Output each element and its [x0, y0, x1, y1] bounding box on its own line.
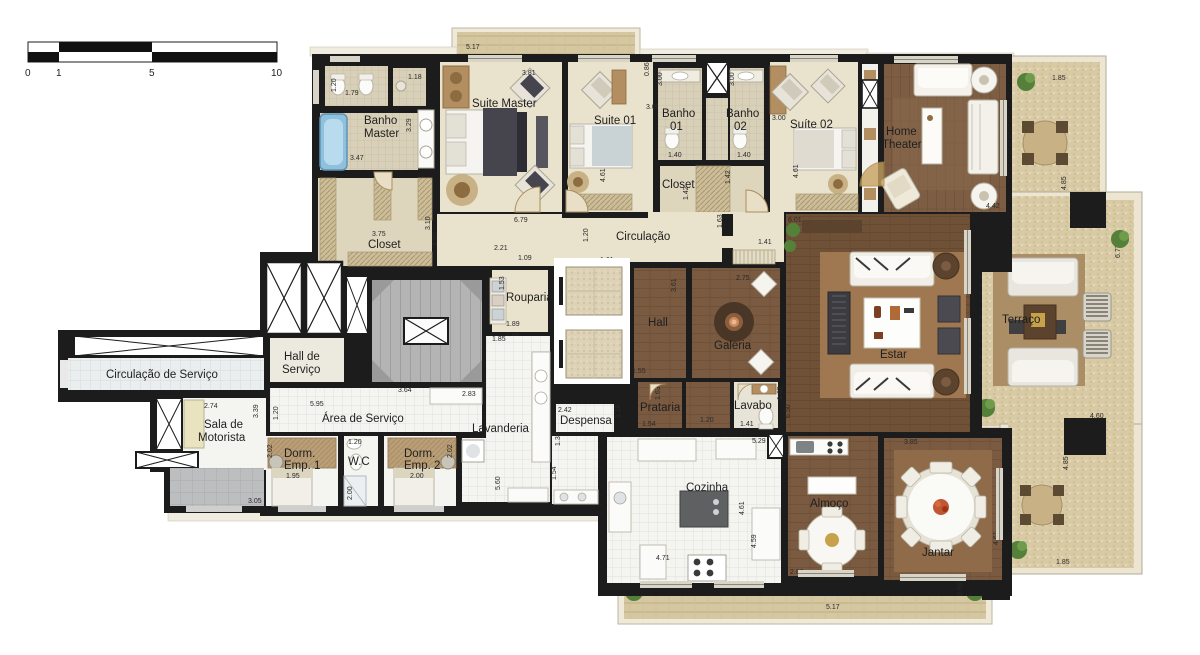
svg-text:5.29: 5.29 [752, 438, 766, 445]
svg-text:1.53: 1.53 [499, 276, 506, 290]
svg-text:Galeria: Galeria [714, 340, 752, 352]
svg-text:Circulação: Circulação [616, 231, 670, 243]
svg-text:2.74: 2.74 [204, 403, 218, 410]
svg-text:Rouparia: Rouparia [506, 292, 553, 304]
svg-text:Banho: Banho [364, 115, 397, 127]
svg-text:5.17: 5.17 [466, 44, 480, 51]
svg-text:4.59: 4.59 [751, 534, 758, 548]
svg-text:1.41: 1.41 [758, 239, 772, 246]
svg-text:5.60: 5.60 [495, 476, 502, 490]
svg-text:0.96: 0.96 [957, 582, 964, 596]
svg-text:3.29: 3.29 [406, 118, 413, 132]
svg-text:Terraço: Terraço [1002, 314, 1040, 326]
svg-text:1.42: 1.42 [683, 186, 690, 200]
svg-text:Emp. 1: Emp. 1 [284, 460, 320, 472]
svg-text:0: 0 [25, 68, 31, 79]
svg-text:Prataria: Prataria [640, 402, 681, 414]
svg-text:6.50: 6.50 [785, 404, 792, 418]
svg-text:1.18: 1.18 [408, 74, 422, 81]
svg-text:4.42: 4.42 [986, 203, 1000, 210]
svg-text:1.20: 1.20 [273, 406, 280, 420]
svg-text:Estar: Estar [880, 349, 907, 361]
svg-text:2.42: 2.42 [558, 407, 572, 414]
svg-text:1.20: 1.20 [348, 439, 362, 446]
svg-text:4.85: 4.85 [1061, 176, 1068, 190]
svg-text:10: 10 [271, 68, 283, 79]
svg-text:1.63: 1.63 [655, 386, 662, 400]
svg-text:Lavanderia: Lavanderia [472, 423, 530, 435]
svg-text:2.00: 2.00 [410, 473, 424, 480]
svg-text:4.61: 4.61 [739, 501, 746, 515]
svg-text:Closet: Closet [368, 239, 401, 251]
svg-text:Almoço: Almoço [810, 498, 848, 510]
svg-text:Hall de: Hall de [284, 351, 320, 363]
svg-text:2.00: 2.00 [347, 486, 354, 500]
svg-text:1.55: 1.55 [632, 368, 646, 375]
svg-text:Dorm.: Dorm. [404, 448, 435, 460]
svg-text:5.17: 5.17 [826, 604, 840, 611]
svg-text:1.40: 1.40 [668, 152, 682, 159]
svg-text:Suite 01: Suite 01 [594, 115, 636, 127]
svg-text:3.75: 3.75 [372, 231, 386, 238]
svg-text:1.18: 1.18 [615, 404, 622, 418]
svg-text:3.64: 3.64 [398, 387, 412, 394]
svg-text:1.89: 1.89 [506, 321, 520, 328]
svg-text:1.40: 1.40 [737, 152, 751, 159]
svg-text:Serviço: Serviço [282, 364, 320, 376]
svg-text:1.95: 1.95 [286, 473, 300, 480]
svg-text:1.85: 1.85 [492, 336, 506, 343]
svg-text:3.00: 3.00 [772, 115, 786, 122]
svg-text:02: 02 [734, 121, 747, 133]
svg-text:Hall: Hall [648, 317, 668, 329]
svg-text:1.09: 1.09 [518, 255, 532, 262]
svg-text:1.20: 1.20 [331, 78, 338, 92]
svg-text:Dorm.: Dorm. [284, 448, 315, 460]
svg-text:4.61: 4.61 [793, 164, 800, 178]
svg-text:Área de Serviço: Área de Serviço [322, 412, 404, 425]
svg-text:6.01: 6.01 [788, 217, 802, 224]
svg-text:1.42: 1.42 [725, 170, 732, 184]
svg-text:2.02: 2.02 [447, 444, 454, 458]
svg-text:Jantar: Jantar [922, 547, 954, 559]
svg-text:1.54: 1.54 [551, 466, 558, 480]
svg-text:1.85: 1.85 [1056, 559, 1070, 566]
svg-text:4.61: 4.61 [600, 168, 607, 182]
svg-text:Circulação de Serviço: Circulação de Serviço [106, 369, 218, 381]
svg-text:3.39: 3.39 [253, 404, 260, 418]
svg-text:2.21: 2.21 [494, 245, 508, 252]
svg-text:1.65: 1.65 [777, 386, 784, 400]
svg-text:Despensa: Despensa [560, 415, 612, 427]
svg-text:Theater: Theater [882, 139, 922, 151]
svg-text:3.05: 3.05 [248, 498, 262, 505]
svg-text:3.00: 3.00 [646, 104, 660, 111]
svg-text:5: 5 [149, 68, 155, 79]
svg-text:3.81: 3.81 [522, 70, 536, 77]
svg-text:3.00: 3.00 [729, 72, 736, 86]
svg-text:1.54: 1.54 [642, 421, 656, 428]
svg-text:Closet: Closet [662, 179, 695, 191]
svg-text:6.79: 6.79 [514, 217, 528, 224]
svg-text:3.61: 3.61 [671, 278, 678, 292]
svg-text:1.85: 1.85 [1052, 75, 1066, 82]
svg-text:2.75: 2.75 [736, 275, 750, 282]
svg-text:1.20: 1.20 [583, 228, 590, 242]
svg-text:01: 01 [670, 121, 683, 133]
svg-text:W.C: W.C [348, 456, 370, 468]
svg-text:Motorista: Motorista [198, 432, 246, 444]
svg-text:3.10: 3.10 [425, 216, 432, 230]
svg-text:2.02: 2.02 [267, 444, 274, 458]
svg-text:Master: Master [364, 128, 399, 140]
svg-text:3.47: 3.47 [350, 155, 364, 162]
svg-text:4.85: 4.85 [1063, 456, 1070, 470]
svg-text:Cozinha: Cozinha [686, 482, 729, 494]
svg-text:Banho: Banho [662, 108, 695, 120]
svg-text:1.41: 1.41 [740, 421, 754, 428]
svg-text:Lavabo: Lavabo [734, 400, 772, 412]
svg-text:2.83: 2.83 [462, 391, 476, 398]
svg-text:Sala de: Sala de [204, 419, 243, 431]
svg-text:3.85: 3.85 [904, 439, 918, 446]
svg-text:Emp. 2: Emp. 2 [404, 460, 440, 472]
svg-text:Home: Home [886, 126, 917, 138]
svg-text:4.71: 4.71 [656, 555, 670, 562]
svg-text:1.34: 1.34 [555, 432, 562, 446]
svg-text:1.63: 1.63 [717, 214, 724, 228]
svg-text:1: 1 [56, 68, 62, 79]
svg-text:1.79: 1.79 [345, 90, 359, 97]
svg-text:0.86: 0.86 [644, 62, 651, 76]
svg-text:Banho: Banho [726, 108, 759, 120]
svg-text:3.00: 3.00 [657, 72, 664, 86]
svg-text:1.20: 1.20 [700, 417, 714, 424]
svg-text:5.95: 5.95 [310, 401, 324, 408]
svg-text:Suite Master: Suite Master [472, 98, 537, 110]
svg-text:Suíte 02: Suíte 02 [790, 119, 833, 131]
